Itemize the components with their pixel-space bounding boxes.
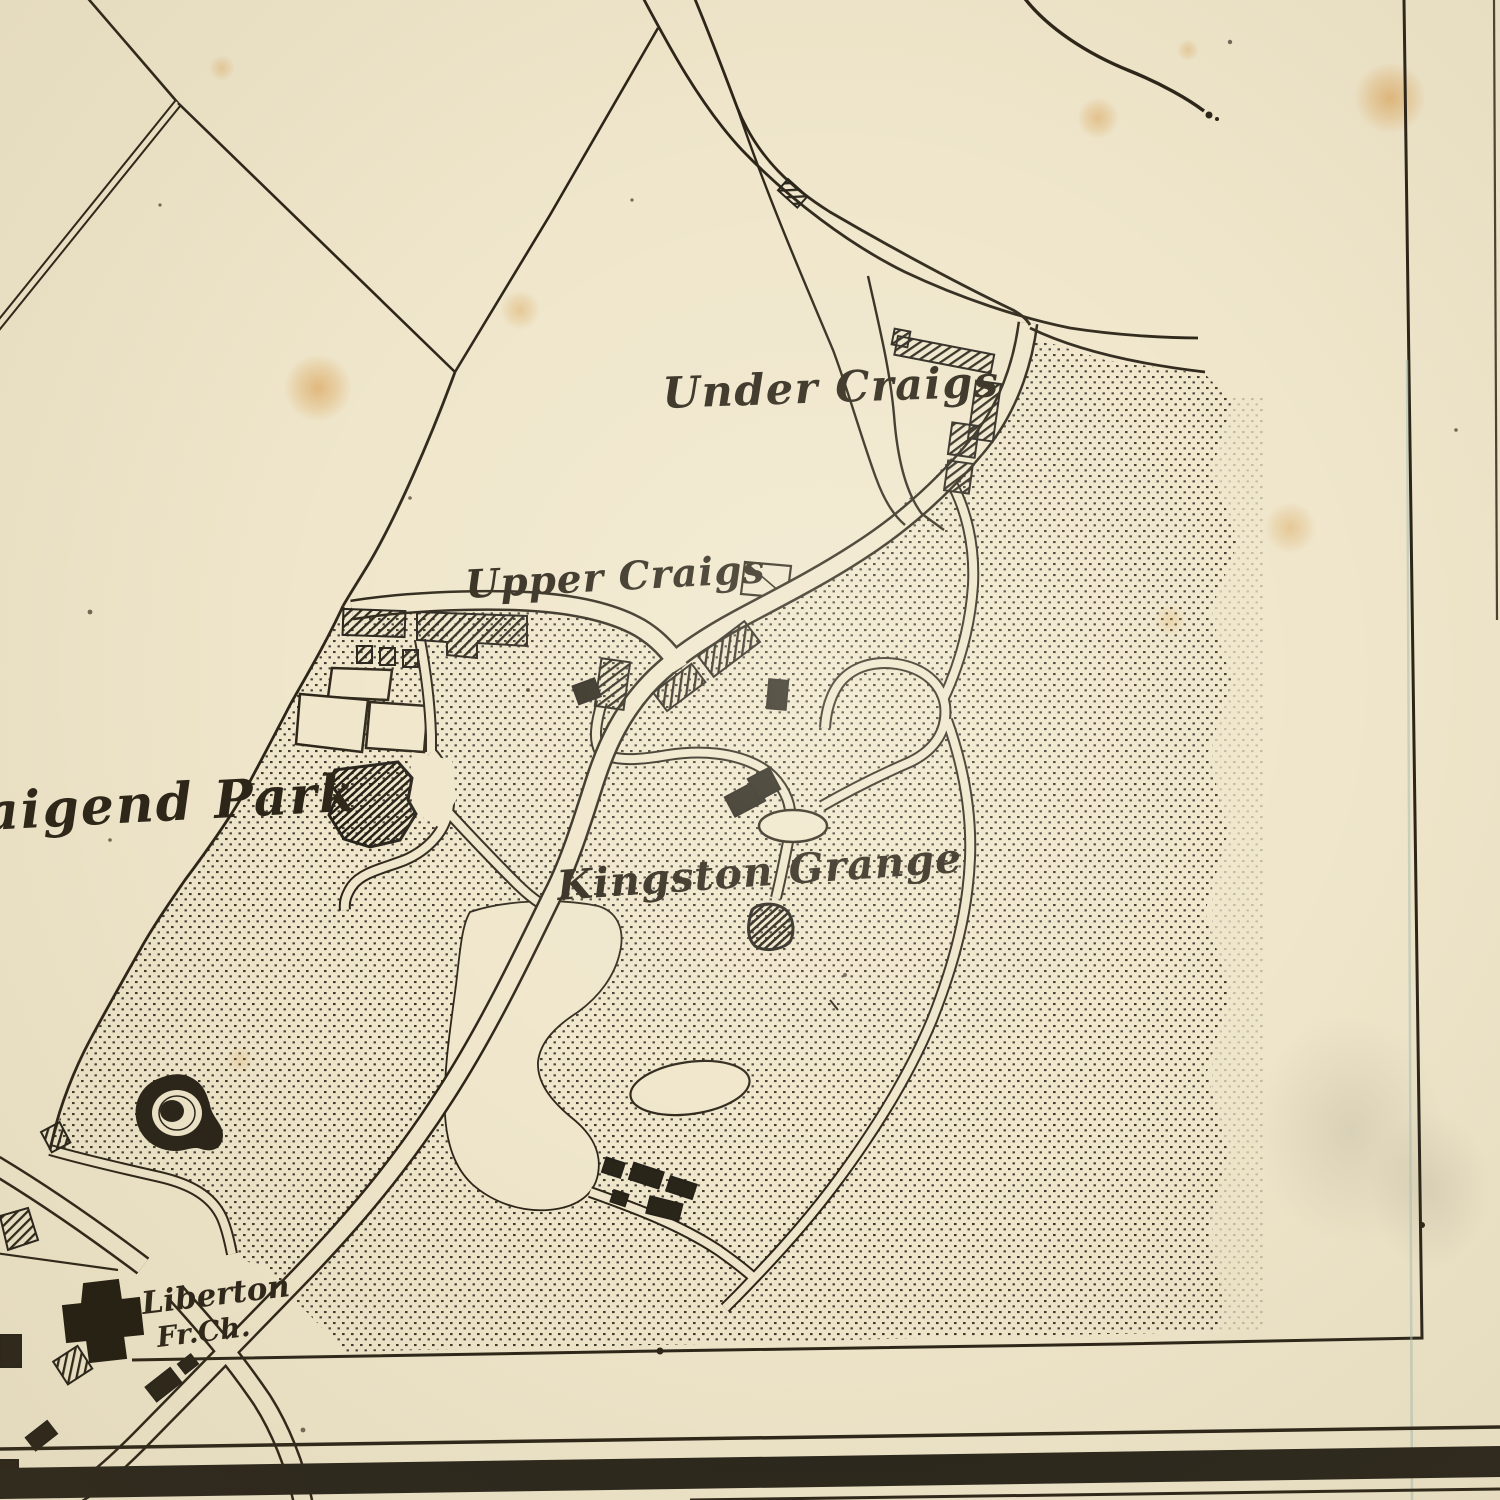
map-canvas: Under Craigs Upper Craigs Kingston Grang…: [0, 0, 1500, 1500]
map-sheet: Under Craigs Upper Craigs Kingston Grang…: [0, 0, 1500, 1500]
carriage-sweep: [759, 810, 827, 842]
kingston-grange-house: [749, 904, 793, 949]
